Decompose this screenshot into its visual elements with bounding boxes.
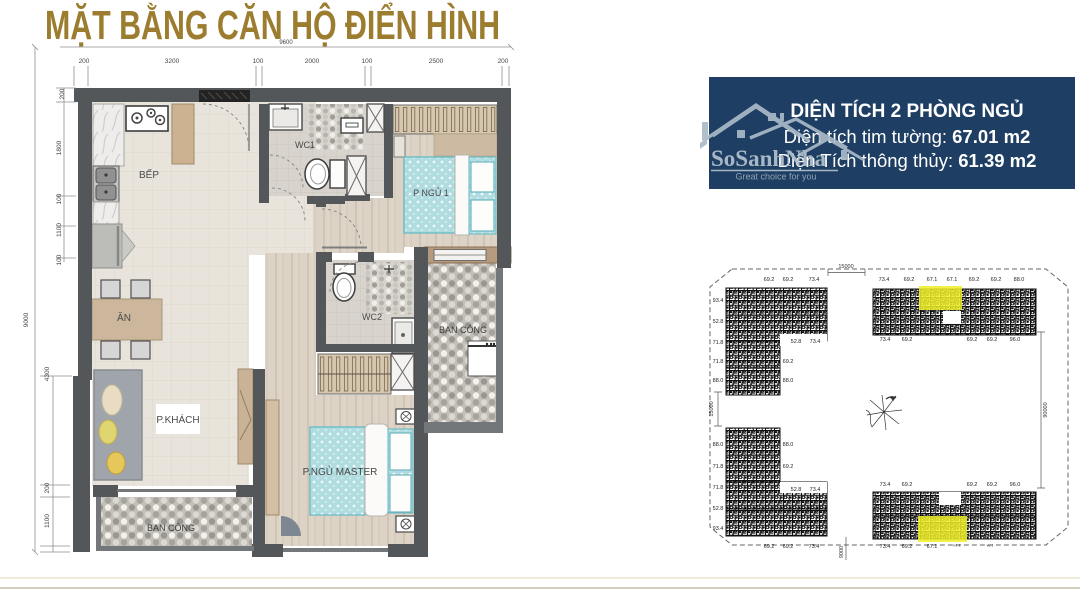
svg-text:69.2: 69.2 [967, 337, 978, 343]
svg-text:90000: 90000 [1043, 402, 1049, 417]
svg-text:88.0: 88.0 [783, 442, 794, 448]
svg-text:69.2: 69.2 [764, 544, 775, 550]
svg-text:69.2: 69.2 [902, 482, 913, 488]
svg-text:69.2: 69.2 [969, 277, 980, 283]
svg-text:9000: 9000 [23, 312, 30, 327]
svg-text:100: 100 [56, 254, 63, 265]
svg-text:71.8: 71.8 [713, 464, 724, 470]
svg-text:P.NGỦ MASTER: P.NGỦ MASTER [303, 465, 378, 478]
svg-text:96.0: 96.0 [1010, 482, 1021, 488]
svg-text:69.2: 69.2 [764, 277, 775, 283]
svg-text:73.4: 73.4 [880, 544, 891, 550]
svg-text:71.8: 71.8 [713, 359, 724, 365]
svg-text:BAN CÔNG: BAN CÔNG [439, 325, 487, 335]
svg-text:100: 100 [362, 58, 373, 65]
svg-text:1100: 1100 [44, 514, 51, 528]
svg-text:52.8: 52.8 [791, 339, 802, 345]
svg-text:69.2: 69.2 [902, 544, 913, 550]
svg-text:ⁿ¹ ²: ⁿ¹ ² [953, 543, 960, 550]
svg-text:69.2: 69.2 [991, 277, 1002, 283]
svg-text:WC2: WC2 [362, 312, 382, 322]
svg-text:73.4: 73.4 [880, 337, 891, 343]
svg-text:100: 100 [253, 58, 264, 65]
svg-text:52.8: 52.8 [713, 319, 724, 325]
svg-text:3200: 3200 [165, 58, 180, 65]
svg-text:73.4: 73.4 [809, 544, 820, 550]
svg-text:69.2: 69.2 [783, 359, 794, 365]
svg-text:73.4: 73.4 [810, 487, 821, 493]
svg-text:200: 200 [44, 482, 51, 493]
svg-text:P NGỦ 1: P NGỦ 1 [413, 187, 449, 198]
svg-text:52.8: 52.8 [713, 506, 724, 512]
svg-text:ĂN: ĂN [117, 311, 131, 324]
svg-text:93.4: 93.4 [713, 526, 724, 532]
svg-text:1100: 1100 [56, 223, 63, 237]
svg-text:15000: 15000 [709, 401, 715, 416]
svg-text:71.8: 71.8 [713, 485, 724, 491]
svg-text:93.4: 93.4 [713, 298, 724, 304]
svg-text:BẾP: BẾP [139, 168, 159, 181]
svg-text:88.0: 88.0 [713, 442, 724, 448]
svg-text:2500: 2500 [429, 58, 444, 65]
svg-text:69.2: 69.2 [987, 482, 998, 488]
svg-text:69.2: 69.2 [783, 464, 794, 470]
svg-text:9000: 9000 [839, 546, 845, 558]
svg-text:88.0: 88.0 [783, 378, 794, 384]
svg-text:69.2: 69.2 [967, 482, 978, 488]
svg-text:71.8: 71.8 [713, 340, 724, 346]
svg-text:200: 200 [59, 88, 66, 99]
svg-text:73.4: 73.4 [880, 482, 891, 488]
svg-text:69.2: 69.2 [783, 544, 794, 550]
svg-text:96.0: 96.0 [1010, 337, 1021, 343]
svg-text:WC1: WC1 [295, 140, 315, 150]
svg-text:69.2: 69.2 [902, 337, 913, 343]
svg-text:73.4: 73.4 [879, 277, 890, 283]
svg-text:15000: 15000 [838, 264, 853, 270]
svg-text:2000: 2000 [305, 58, 320, 65]
svg-text:200: 200 [79, 58, 90, 65]
svg-text:69.2: 69.2 [987, 337, 998, 343]
svg-text:67.1: 67.1 [927, 544, 938, 550]
svg-text:1800: 1800 [56, 140, 63, 155]
svg-text:69.2: 69.2 [904, 277, 915, 283]
svg-text:ᵛᵘ ᵗ: ᵛᵘ ᵗ [986, 543, 994, 550]
svg-text:4300: 4300 [44, 366, 51, 381]
svg-text:88.0: 88.0 [713, 378, 724, 384]
svg-text:9600: 9600 [279, 40, 293, 46]
svg-text:73.4: 73.4 [809, 277, 820, 283]
svg-text:73.4: 73.4 [810, 339, 821, 345]
svg-text:67.1: 67.1 [927, 277, 938, 283]
svg-text:100: 100 [56, 193, 63, 204]
svg-text:200: 200 [498, 58, 509, 65]
svg-text:BAN CÔNG: BAN CÔNG [147, 523, 195, 533]
svg-text:P.KHÁCH: P.KHÁCH [156, 413, 199, 426]
svg-text:69.2: 69.2 [783, 277, 794, 283]
svg-text:67.1: 67.1 [947, 277, 958, 283]
svg-text:88.0: 88.0 [1014, 277, 1025, 283]
svg-text:52.8: 52.8 [791, 487, 802, 493]
